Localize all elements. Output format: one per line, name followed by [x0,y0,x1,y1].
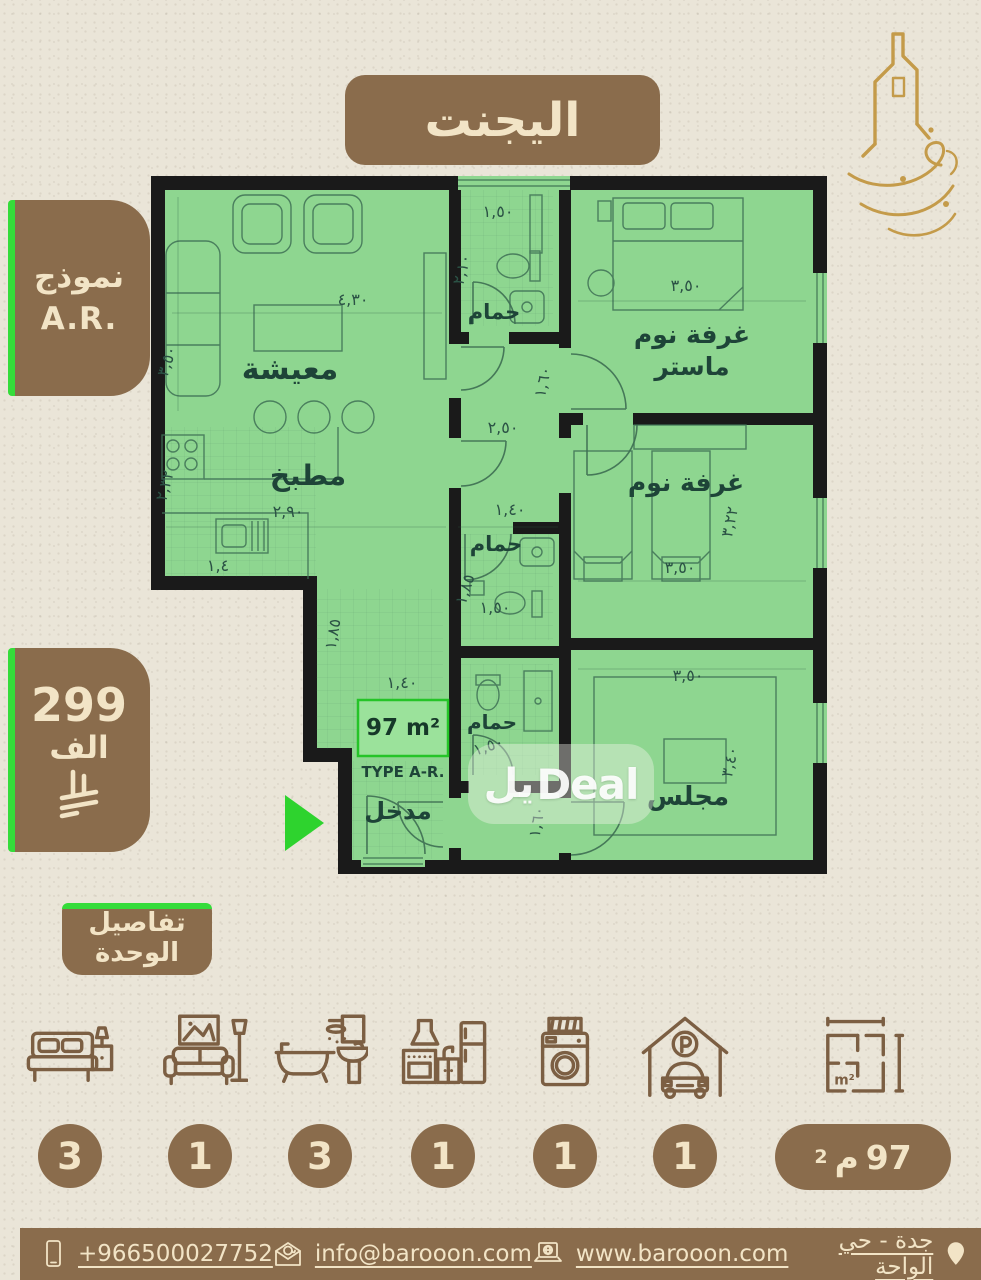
svg-text:m²: m² [834,1073,855,1089]
washer-icon [517,1012,613,1108]
email-envelope-icon [273,1240,303,1268]
room-label-entrance: مدخل [364,797,431,825]
details-line2: الوحدة [95,939,179,969]
entrance-arrow-icon [285,795,324,851]
unit-details-badge: تفاصيل الوحدة [62,903,212,975]
room-label-majlis: مجلس [647,782,729,812]
room-label-bedroom: غرفة نوم [628,468,744,498]
svg-text:٣,٥٠: ٣,٥٠ [671,276,702,295]
model-badge-code: A.R. [41,301,118,337]
svg-text:٣,٥٠: ٣,٥٠ [665,558,696,577]
location-info: جدة - حي الواحة [788,1228,967,1280]
bed-icon [22,1012,118,1108]
room-label-bath-mid: حمام [470,532,523,556]
website-contact[interactable]: www.barooon.com [532,1241,789,1267]
saudi-riyal-icon [57,767,101,819]
area-unit: م [835,1138,859,1177]
room-label-master-1: غرفة نوم [634,320,750,350]
svg-text:١,٤٠: ١,٤٠ [387,673,418,692]
model-badge: نموذج A.R. [8,200,150,396]
feature-bathrooms: 3 [255,1012,385,1188]
page-title: اليجنت [345,75,660,165]
floor-plan-icon: m² [815,1012,911,1108]
kitchens-count: 1 [411,1124,475,1188]
kitchen-icon [395,1012,491,1108]
svg-text:٢,٥٠: ٢,٥٠ [488,418,519,437]
poster-page: اليجنت نموذج A.R. 299 الف [0,0,981,1280]
bathroom-icon [272,1012,368,1108]
area-type-box: 97 m² TYPE A-R. [358,700,448,781]
feature-living-rooms: 1 [135,1012,265,1188]
location-pin-icon [945,1239,967,1269]
svg-text:١,٥٠: ١,٥٠ [480,598,511,617]
living-rooms-count: 1 [168,1124,232,1188]
feature-parking: 1 [620,1012,750,1188]
price-badge: 299 الف [8,648,150,852]
room-label-master-2: ماستر [652,352,729,382]
phone-contact[interactable]: +966500027752 [40,1239,273,1269]
aqardeal-watermark: يل Deal [468,744,654,824]
room-label-bath-low: حمام [467,710,517,734]
price-amount: 299 [31,681,127,729]
page-title-text: اليجنت [425,93,581,148]
area-value: 97 [866,1138,912,1177]
bedrooms-count: 3 [38,1124,102,1188]
price-badge-accent-strip [8,648,15,852]
model-badge-accent-strip [8,200,15,396]
feature-area: m² 97م2 [775,1012,951,1190]
details-badge-accent-strip [62,903,212,909]
watermark-arabic: يل [484,761,535,807]
area-sup: 2 [814,1146,827,1168]
svg-text:١,٤٠: ١,٤٠ [495,500,526,519]
svg-text:٣,٥٠: ٣,٥٠ [673,666,704,685]
price-unit: الف [49,731,108,765]
laundry-count: 1 [533,1124,597,1188]
footer-contact-bar: +966500027752 info@barooon.com www.baroo… [20,1228,981,1280]
area-label: 97 m² [366,715,440,741]
area-value-pill: 97م2 [775,1124,951,1190]
watermark-latin: Deal [536,760,638,809]
svg-text:١,٥٠: ١,٥٠ [483,202,514,221]
laptop-globe-icon [532,1241,564,1267]
parking-count: 1 [653,1124,717,1188]
svg-text:٢,٩٠: ٢,٩٠ [273,502,304,521]
baroon-logo-icon [833,22,981,262]
phone-number: +966500027752 [78,1241,273,1267]
svg-text:١,٤: ١,٤ [207,556,229,575]
model-badge-title: نموذج [34,259,124,295]
feature-bedrooms: 3 [5,1012,135,1188]
website-url: www.barooon.com [576,1241,789,1267]
room-label-living: معيشة [242,352,338,387]
room-label-bath-top: حمام [468,300,521,324]
parking-icon [637,1012,733,1108]
feature-kitchens: 1 [378,1012,508,1188]
mobile-phone-icon [40,1239,66,1269]
email-contact[interactable]: info@barooon.com [273,1240,532,1268]
bathrooms-count: 3 [288,1124,352,1188]
type-label: TYPE A-R. [362,763,445,781]
location-text: جدة - حي الواحة [788,1228,933,1280]
svg-text:٤,٣٠: ٤,٣٠ [338,290,369,309]
details-line1: تفاصيل [88,909,185,939]
living-room-icon [152,1012,248,1108]
feature-laundry: 1 [500,1012,630,1188]
room-label-kitchen: مطبخ [270,459,346,492]
email-address: info@barooon.com [315,1241,532,1267]
